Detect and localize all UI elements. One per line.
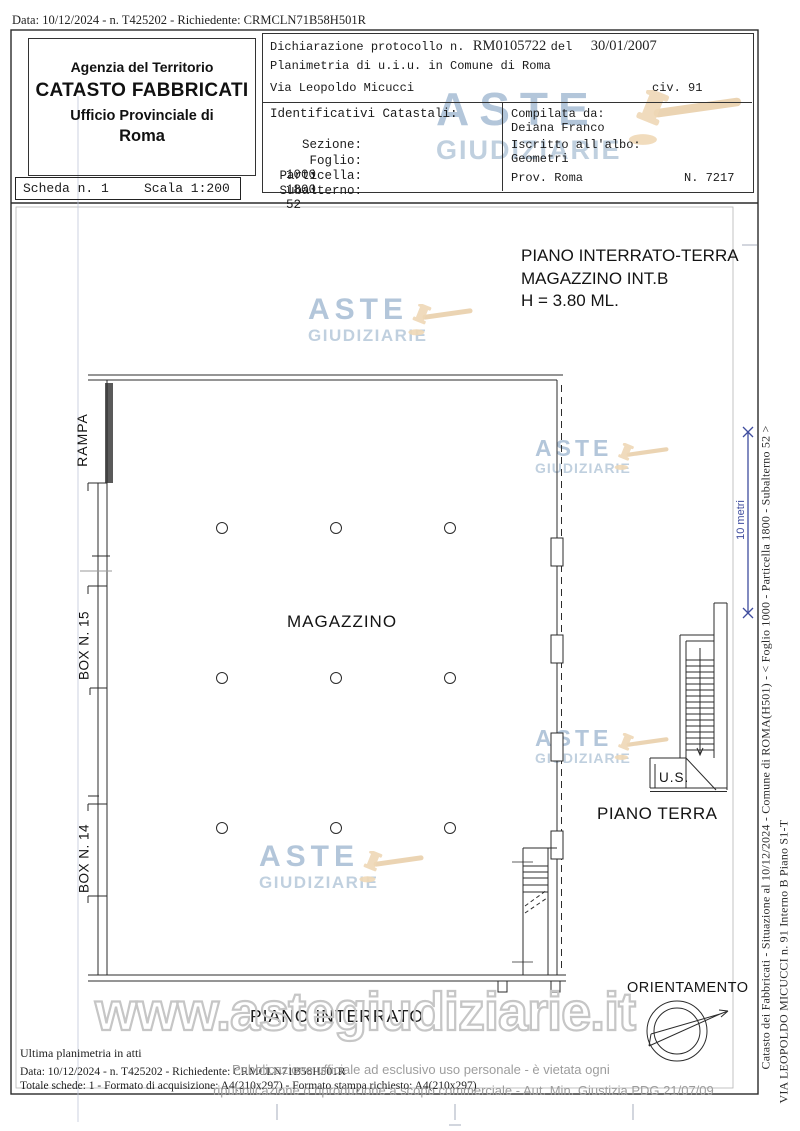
protocol-number: RM0105722 bbox=[473, 38, 546, 54]
label-piano-terra: PIANO TERRA bbox=[597, 804, 717, 824]
compilata-label: Compilata da: bbox=[511, 107, 605, 121]
protocol-del: del bbox=[551, 40, 573, 54]
compilata-value: Deiana Franco bbox=[511, 121, 605, 135]
margin-text-2: VIA LEOPOLDO MICUCCI n. 91 Interno B Pia… bbox=[777, 844, 792, 1104]
scheda-box: Scheda n. 1 Scala 1:200 bbox=[15, 177, 241, 200]
plan-title-line1: PIANO INTERRATO-TERRA bbox=[521, 245, 739, 268]
footer-note: Ultima planimetria in atti bbox=[20, 1046, 142, 1061]
scheda-number: Scheda n. 1 bbox=[23, 181, 109, 196]
plan-title: PIANO INTERRATO-TERRA MAGAZZINO INT.B H … bbox=[521, 245, 739, 313]
register-number: N. 7217 bbox=[684, 171, 734, 185]
prov-label: Prov. Roma bbox=[511, 171, 583, 185]
scale-label: Scala 1:200 bbox=[144, 181, 230, 196]
label-us: U.S. bbox=[659, 770, 689, 785]
label-rampa: RAMPA bbox=[74, 390, 90, 490]
declaration-divider bbox=[262, 102, 752, 103]
label-orientamento: ORIENTAMENTO bbox=[627, 980, 748, 996]
plan-title-line2: MAGAZZINO INT.B bbox=[521, 268, 739, 291]
legal-overlay-1: Pubblicazione ufficiale ad esclusivo uso… bbox=[232, 1062, 610, 1077]
identifiers-title: Identificativi Catastali: bbox=[270, 107, 458, 121]
identifier-value: 52 bbox=[286, 198, 301, 212]
document-page: ASTE GIUDIZIARIE ASTE GIUDIZIARIE ASTE bbox=[0, 0, 800, 1131]
albo-value: Geometri bbox=[511, 152, 569, 166]
margin-text-1: Catasto dei Fabbricati - Situazione al 1… bbox=[759, 403, 774, 1093]
watermark-url: www.astegiudiziarie.it bbox=[95, 981, 635, 1043]
office-city: Roma bbox=[29, 127, 255, 146]
agency-name: Agenzia del Territorio bbox=[29, 59, 255, 75]
legal-overlay-2: ripubblicazione o riproduzione a scopo c… bbox=[213, 1083, 714, 1098]
street-line: Via Leopoldo Micucci bbox=[270, 81, 414, 95]
identifier-label: Subalterno: bbox=[278, 184, 362, 198]
label-box15: BOX N. 15 bbox=[77, 591, 92, 701]
planimetria-line: Planimetria di u.i.u. in Comune di Roma bbox=[270, 59, 551, 73]
plan-title-line3: H = 3.80 ML. bbox=[521, 290, 739, 313]
agency-box: Agenzia del Territorio CATASTO FABBRICAT… bbox=[28, 38, 256, 176]
declaration-line: Dichiarazione protocollo n. RM0105722 de… bbox=[270, 37, 657, 55]
label-box14: BOX N. 14 bbox=[77, 804, 92, 914]
declaration-prefix: Dichiarazione protocollo n. bbox=[270, 40, 464, 54]
header-date-line: Data: 10/12/2024 - n. T425202 - Richiede… bbox=[12, 13, 366, 28]
identifier-row: Subalterno: 52 bbox=[248, 170, 362, 226]
albo-label: Iscritto all'albo: bbox=[511, 138, 641, 152]
compiler-divider bbox=[502, 102, 503, 191]
civic-number: civ. 91 bbox=[652, 81, 702, 95]
protocol-date: 30/01/2007 bbox=[591, 38, 657, 54]
scale-bar-label: 10 metri bbox=[735, 485, 747, 555]
catasto-title: CATASTO FABBRICATI bbox=[29, 80, 255, 102]
office-line: Ufficio Provinciale di bbox=[29, 108, 255, 124]
label-magazzino: MAGAZZINO bbox=[287, 612, 397, 632]
